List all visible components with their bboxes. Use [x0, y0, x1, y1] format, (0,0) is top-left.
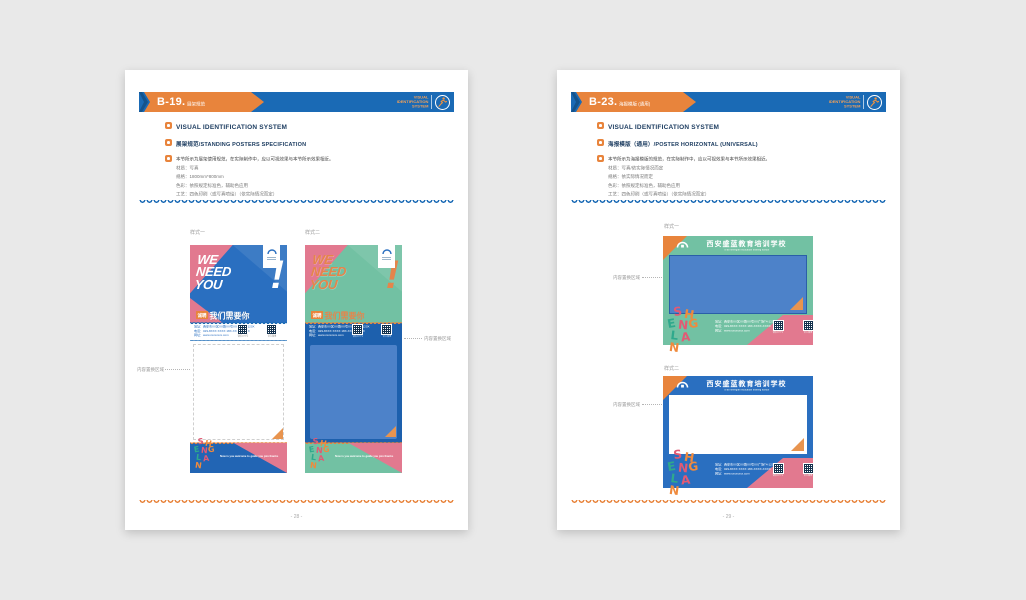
bullet-icon [165, 155, 172, 162]
section-subtitle: 海报模版（通用）/POSTER HORIZONTAL (UNIVERSAL) [608, 140, 758, 148]
fold-corner-icon [272, 428, 283, 439]
scallop-divider [139, 200, 454, 204]
vis-badge-text: VISUAL IDENTIFICATION SYSTEM [828, 95, 860, 109]
section-code: B-19. [157, 96, 185, 108]
footer-slogan: Now is you welcome to guide you join tha… [335, 455, 393, 458]
school-name: 西安盛蓝教育培训学校 [706, 379, 786, 389]
page-left: B-19. 展架规范 VISUAL IDENTIFICATION SYSTEM … [125, 70, 468, 530]
section-title-cn: 海报模版 (通用) [619, 100, 650, 107]
annotation-leader [642, 404, 662, 405]
hero-title: WENEEDYOU [194, 254, 233, 291]
section-header-bar: B-19. 展架规范 VISUAL IDENTIFICATION SYSTEM [139, 92, 454, 112]
content-area-annotation: 内容置换区域 [613, 401, 640, 408]
bullet-row: VISUAL IDENTIFICATION SYSTEM [165, 122, 398, 138]
section-header-bar: B-23. 海报模版 (通用) VISUAL IDENTIFICATION SY… [571, 92, 886, 112]
logo-tab [263, 245, 280, 268]
qr-code-icon [238, 325, 247, 334]
scallop-divider [571, 200, 886, 204]
section-title-cn: 展架规范 [187, 100, 205, 107]
section-tag: B-23. 海报模版 (通用) [576, 92, 696, 112]
contact-strip: 地址：西安市XX区XX路XX号XX广场T4-120X 电话：029-8XXX X… [190, 323, 287, 341]
divider [863, 95, 864, 109]
bullet-icon [597, 122, 604, 129]
spec-description: 本节所示为展架使用规范，在实际制作中，应以可视效果与本节所示效果相近。 材质：写… [176, 155, 334, 199]
bullet-icon [597, 155, 604, 162]
divider [431, 95, 432, 109]
arch-logo-icon [676, 239, 689, 249]
qr-codes: 微信公众号 官方微博 [763, 464, 820, 476]
page-number: - 29 - [643, 514, 815, 520]
style-label-2: 样式二 [664, 364, 679, 372]
arch-logo-icon [676, 379, 689, 389]
recruit-text: 我们需要你 [210, 309, 250, 321]
qr-code-icon [774, 464, 783, 473]
section-tag: B-19. 展架规范 [144, 92, 264, 112]
shenglan-letters: SHENGLAN [666, 308, 702, 356]
scallop-footer [571, 500, 886, 504]
content-replace-area [669, 255, 807, 314]
standing-poster-style2: ! WENEEDYOU 诚聘 我们需要你 [305, 245, 402, 473]
fold-corner-icon [791, 438, 804, 451]
poster-footer: SHENGLAN Now is you welcome to guide you… [305, 443, 402, 473]
bullet-row: 本节所示为展架使用规范，在实际制作中，应以可视效果与本节所示效果相近。 材质：写… [165, 155, 491, 243]
annotation-leader [642, 277, 662, 278]
bullet-row: 本节所示为海报模版的规范，在实际制作中，应以可视效果与本节所示效果相近。 材质：… [597, 155, 932, 243]
logo-text-bar [382, 257, 391, 258]
qr-code-icon [804, 321, 813, 330]
hero-title: WENEEDYOU [309, 254, 348, 291]
qr-code-icon [353, 325, 362, 334]
section-code: B-23. [589, 96, 617, 108]
logo-text-bar [267, 257, 276, 258]
shenglan-letters: SHENGLAN [308, 439, 332, 471]
annotation-leader [165, 369, 190, 370]
content-replace-area [305, 341, 402, 443]
runner-logo-icon [435, 95, 450, 110]
style-label-1: 样式一 [190, 228, 205, 236]
content-replace-area [190, 341, 287, 443]
bullet-icon [165, 139, 172, 146]
fold-corner-icon [385, 426, 396, 437]
vis-heading: VISUAL IDENTIFICATION SYSTEM [176, 123, 287, 131]
bullet-row: VISUAL IDENTIFICATION SYSTEM [597, 122, 830, 138]
qr-caption: 官方微博 [804, 473, 812, 474]
content-area-annotation: 内容置换区域 [137, 366, 164, 373]
poster-footer: SHENGLAN Now is you welcome to guide you… [190, 443, 287, 473]
poster-header: 西安盛蓝教育培训学校 Xi'an shenglan education trai… [663, 379, 813, 392]
manual-spread-canvas: B-19. 展架规范 VISUAL IDENTIFICATION SYSTEM … [0, 0, 1026, 600]
logo-text-bar [267, 259, 276, 260]
qr-caption: 微信公众号 [773, 473, 784, 474]
poster-hero: ! WENEEDYOU 诚聘 我们需要你 [190, 245, 287, 323]
qr-code-icon [774, 321, 783, 330]
scallop-footer [139, 500, 454, 504]
school-name-en: Xi'an shenglan education training school [724, 249, 769, 250]
page-right: B-23. 海报模版 (通用) VISUAL IDENTIFICATION SY… [557, 70, 900, 530]
spec-description: 本节所示为海报模版的规范，在实际制作中，应以可视效果与本节所示效果相近。 材质：… [608, 155, 770, 199]
bullet-icon [165, 122, 172, 129]
footer-slogan: Now is you welcome to guide you join tha… [220, 455, 278, 458]
qr-codes: 微信公众号 官方微博 [228, 325, 284, 337]
contact-strip: 地址：西安市XX区XX路XX号XX广场T4-120X 电话：029-8XXX X… [305, 323, 402, 341]
shenglan-letters: SHENGLAN [666, 451, 702, 499]
content-rect [310, 345, 397, 439]
bullet-row: 海报模版（通用）/POSTER HORIZONTAL (UNIVERSAL) [597, 139, 908, 156]
recruit-text: 我们需要你 [325, 309, 365, 321]
qr-caption: 微信公众号 [353, 334, 364, 335]
annotation-leader [404, 338, 422, 339]
arch-logo-icon [267, 248, 277, 255]
poster-footer: SHENGLAN 地址：西安市XX区XX路XX号XX广场T4-120X 电话：0… [663, 458, 813, 488]
standing-poster-style1: ! WENEEDYOU 诚聘 我们需要你 [190, 245, 287, 473]
school-name: 西安盛蓝教育培训学校 [706, 239, 786, 249]
runner-logo-icon [867, 95, 882, 110]
bullet-row: 展架规范/STANDING POSTERS SPECIFICATION [165, 139, 437, 156]
content-replace-area [669, 395, 807, 454]
vis-badge-text: VISUAL IDENTIFICATION SYSTEM [396, 95, 428, 109]
page-number: - 28 - [211, 514, 383, 520]
style-label-1: 样式一 [664, 222, 679, 230]
logo-tab [378, 245, 395, 268]
qr-code-icon [804, 464, 813, 473]
dashed-frame [193, 344, 284, 440]
style-label-2: 样式二 [305, 228, 320, 236]
content-area-annotation: 内容置换区域 [424, 335, 451, 342]
school-name-en: Xi'an shenglan education training school [724, 389, 769, 390]
recruit-chip: 诚聘 [311, 311, 323, 319]
qr-caption: 官方微博 [268, 334, 276, 335]
horizontal-poster-style1: 西安盛蓝教育培训学校 Xi'an shenglan education trai… [663, 236, 813, 345]
poster-header: 西安盛蓝教育培训学校 Xi'an shenglan education trai… [663, 239, 813, 252]
qr-codes: 微信公众号 官方微博 [343, 325, 399, 337]
recruit-badge: 诚聘 我们需要你 [311, 309, 365, 321]
qr-code-icon [382, 325, 391, 334]
recruit-chip: 诚聘 [196, 311, 208, 319]
section-subtitle: 展架规范/STANDING POSTERS SPECIFICATION [176, 140, 306, 148]
qr-caption: 微信公众号 [238, 334, 249, 335]
logo-text-bar [382, 259, 391, 260]
recruit-badge: 诚聘 我们需要你 [196, 309, 250, 321]
vis-heading: VISUAL IDENTIFICATION SYSTEM [608, 123, 719, 131]
qr-caption: 官方微博 [383, 334, 391, 335]
shenglan-letters: SHENGLAN [193, 439, 217, 471]
qr-codes: 微信公众号 官方微博 [763, 321, 820, 333]
qr-caption: 微信公众号 [773, 330, 784, 331]
content-area-annotation: 内容置换区域 [613, 274, 640, 281]
fold-corner-icon [790, 297, 803, 310]
poster-footer: SHENGLAN 地址：西安市XX区XX路XX号XX广场T4-120X 电话：0… [663, 315, 813, 345]
bullet-icon [597, 139, 604, 146]
arch-logo-icon [382, 248, 392, 255]
qr-caption: 官方微博 [804, 330, 812, 331]
poster-hero: ! WENEEDYOU 诚聘 我们需要你 [305, 245, 402, 323]
horizontal-poster-style2: 西安盛蓝教育培训学校 Xi'an shenglan education trai… [663, 376, 813, 488]
qr-code-icon [267, 325, 276, 334]
